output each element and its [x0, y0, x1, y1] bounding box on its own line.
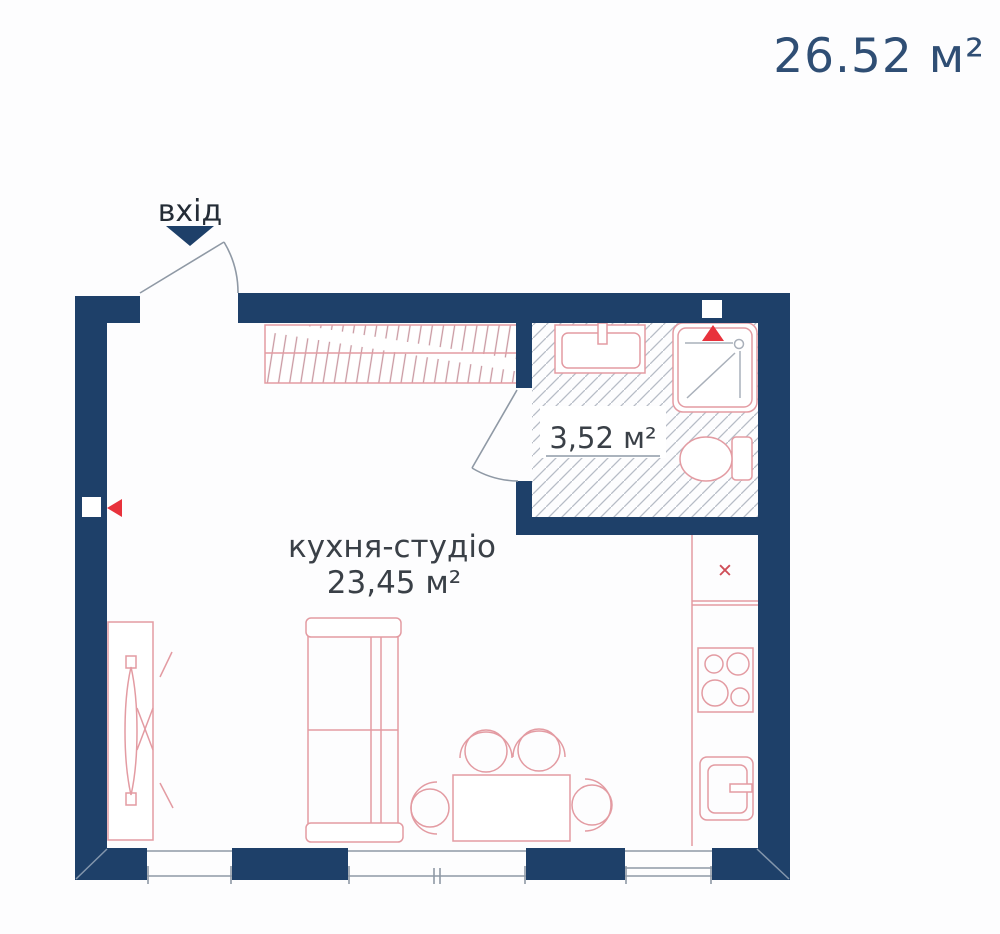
toilet — [680, 437, 752, 481]
kitchen-sink — [700, 757, 753, 820]
floor-plan: ✕ — [0, 0, 1000, 934]
window — [625, 851, 712, 884]
wall-bottom-segment — [232, 848, 348, 880]
entrance-arrow-icon — [166, 226, 214, 246]
dining-chair — [572, 779, 612, 831]
bathroom-wall-stub-top — [516, 323, 532, 388]
fridge-x-mark: ✕ — [717, 560, 733, 582]
bathroom-door — [472, 390, 518, 481]
wall-bottom-segment — [75, 848, 147, 880]
sofa — [306, 618, 403, 842]
bath-sink — [555, 323, 645, 373]
window — [147, 851, 232, 884]
dining-chair — [513, 729, 565, 771]
room-area-label: 23,45 м² — [327, 565, 461, 601]
wardrobe — [108, 622, 173, 840]
dining-chair — [460, 730, 512, 772]
wall-right — [758, 293, 790, 880]
top-wall-vent — [702, 300, 722, 318]
room-name-label: кухня-студіо — [288, 529, 496, 565]
window — [348, 851, 526, 884]
bathroom-wall-bottom — [516, 517, 758, 535]
closet — [265, 325, 517, 383]
wall-bottom-segment — [712, 848, 790, 880]
wall-left — [75, 296, 107, 880]
bathroom-area-label: 3,52 м² — [549, 421, 656, 455]
entrance-door — [140, 242, 238, 293]
dining-chair — [411, 782, 449, 834]
dining-set — [411, 729, 612, 841]
bathroom — [532, 323, 758, 517]
vent-arrow-left-icon — [107, 499, 122, 517]
dining-table — [453, 775, 570, 841]
entrance-label: вхід — [158, 194, 223, 229]
wall-bottom-segment — [526, 848, 625, 880]
total-area-label: 26.52 м² — [773, 29, 985, 84]
stove — [698, 648, 753, 712]
kitchen-counter: ✕ — [692, 535, 758, 846]
left-wall-vent — [82, 497, 101, 517]
